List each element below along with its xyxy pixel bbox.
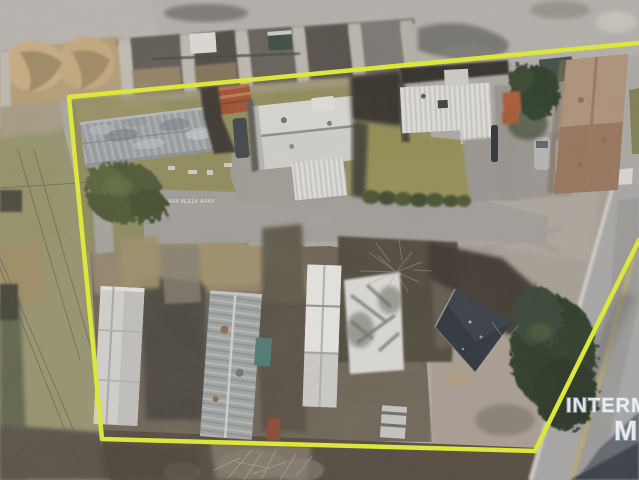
- svg-text:M: M: [614, 415, 637, 446]
- svg-text:INTERM: INTERM: [566, 395, 639, 417]
